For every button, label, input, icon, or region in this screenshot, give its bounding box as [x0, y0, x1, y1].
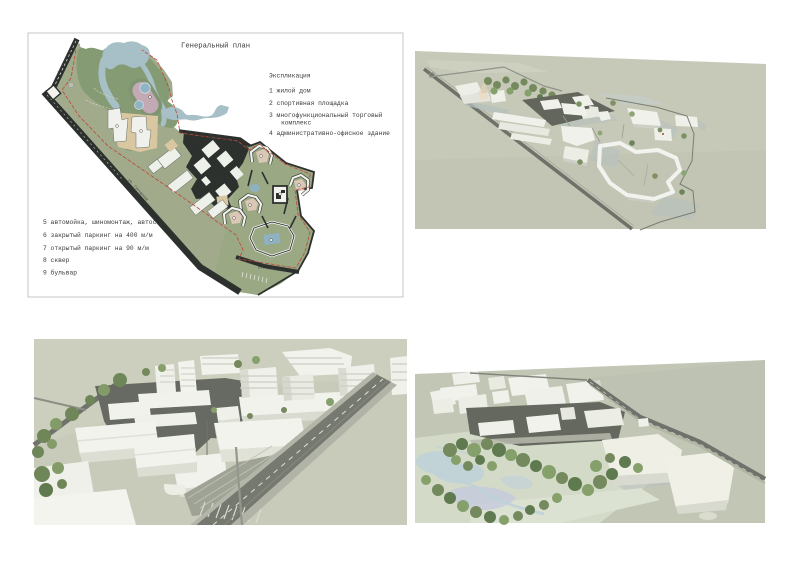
- svg-text:7 открытый паркинг на 90 м/м: 7 открытый паркинг на 90 м/м: [43, 244, 149, 252]
- svg-text:6 закрытый паркинг на 400 м/м: 6 закрытый паркинг на 400 м/м: [43, 231, 153, 239]
- svg-text:3 многофункциональный торговы: 3 многофункциональный торговый: [269, 111, 383, 119]
- svg-text:4 административно-офисное зда: 4 административно-офисное здание: [269, 130, 390, 137]
- svg-text:Генеральный план: Генеральный план: [181, 42, 250, 51]
- svg-text:9 бульвар: 9 бульвар: [43, 269, 77, 277]
- svg-text:2 спортивная площадка: 2 спортивная площадка: [269, 100, 349, 107]
- svg-text:Экспликация: Экспликация: [269, 73, 311, 80]
- svg-text:комплекс: комплекс: [281, 120, 311, 127]
- svg-text:8 сквер: 8 сквер: [43, 257, 70, 264]
- svg-text:1 жилой дом: 1 жилой дом: [269, 87, 311, 95]
